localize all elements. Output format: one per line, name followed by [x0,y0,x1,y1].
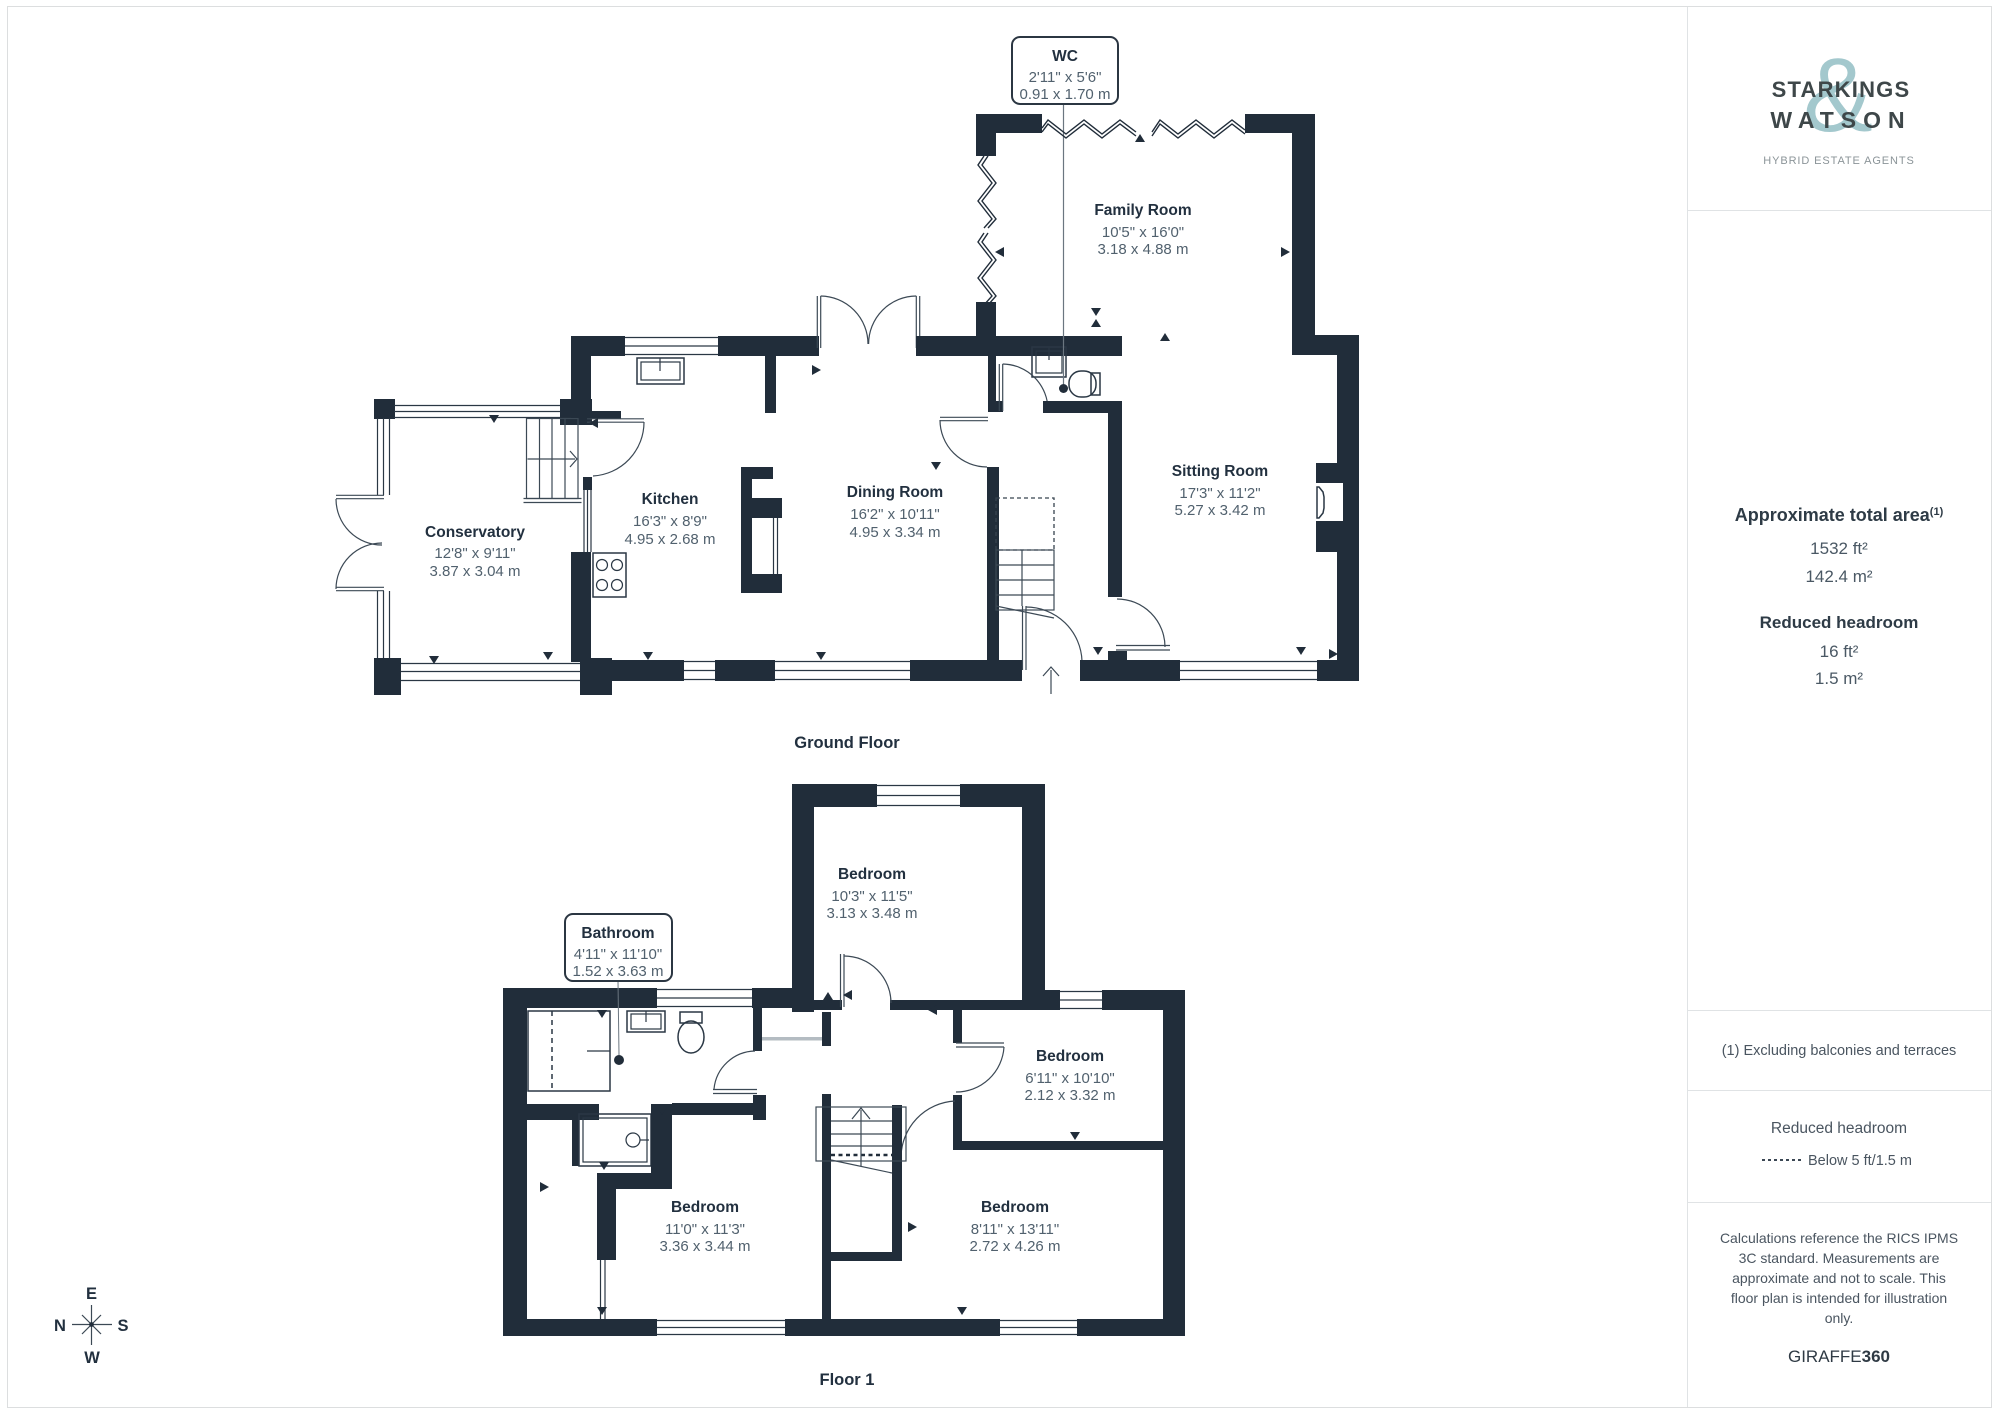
svg-text:Bedroom: Bedroom [671,1199,739,1216]
svg-text:142.4 m²: 142.4 m² [1805,567,1872,586]
svg-text:16'3" x 8'9": 16'3" x 8'9" [633,513,707,530]
svg-text:Kitchen: Kitchen [642,491,699,508]
svg-text:Family Room: Family Room [1094,202,1191,219]
svg-text:4'11" x 11'10": 4'11" x 11'10" [574,946,662,963]
svg-text:2.12 x 3.32 m: 2.12 x 3.32 m [1025,1087,1116,1104]
svg-text:Calculations reference the RIC: Calculations reference the RICS IPMS [1720,1230,1958,1246]
svg-text:Reduced headroom: Reduced headroom [1771,1120,1907,1137]
svg-text:approximate and not to scale.: approximate and not to scale. This [1732,1270,1946,1286]
svg-text:2.72 x 4.26 m: 2.72 x 4.26 m [970,1238,1061,1255]
svg-text:Dining Room: Dining Room [847,484,943,501]
svg-text:(1) Excluding balconies and te: (1) Excluding balconies and terraces [1722,1043,1957,1059]
svg-text:WC: WC [1052,48,1078,65]
svg-text:4.95 x 2.68 m: 4.95 x 2.68 m [625,531,716,548]
svg-text:3C standard. Measurements are: 3C standard. Measurements are [1739,1250,1940,1266]
svg-text:HYBRID ESTATE AGENTS: HYBRID ESTATE AGENTS [1763,155,1914,167]
svg-text:12'8" x 9'11": 12'8" x 9'11" [434,545,515,562]
svg-text:3.18 x 4.88 m: 3.18 x 4.88 m [1098,241,1189,258]
svg-text:Conservatory: Conservatory [425,524,525,541]
svg-text:8'11" x 13'11": 8'11" x 13'11" [971,1221,1059,1238]
svg-text:16 ft²: 16 ft² [1820,642,1859,661]
svg-text:Approximate total area(1): Approximate total area(1) [1735,505,1944,525]
svg-text:Ground Floor: Ground Floor [794,734,900,752]
svg-text:Bedroom: Bedroom [981,1199,1049,1216]
svg-text:10'5" x 16'0": 10'5" x 16'0" [1102,224,1184,241]
svg-text:11'0" x 11'3": 11'0" x 11'3" [665,1221,745,1238]
svg-text:Bathroom: Bathroom [581,925,654,942]
svg-text:E: E [86,1285,97,1303]
svg-text:4.95 x 3.34 m: 4.95 x 3.34 m [850,524,941,541]
svg-text:1.52 x 3.63 m: 1.52 x 3.63 m [573,963,664,980]
svg-text:16'2" x 10'11": 16'2" x 10'11" [850,506,940,523]
svg-text:STARKINGS: STARKINGS [1772,77,1911,102]
svg-text:W: W [84,1349,100,1367]
svg-text:N: N [54,1317,66,1335]
svg-text:Bedroom: Bedroom [1036,1048,1104,1065]
svg-text:floor plan is intended for ill: floor plan is intended for illustration [1731,1290,1947,1306]
svg-text:1.5 m²: 1.5 m² [1815,669,1864,688]
svg-text:Bedroom: Bedroom [838,866,906,883]
svg-text:Sitting Room: Sitting Room [1172,463,1268,480]
svg-text:1532 ft²: 1532 ft² [1810,539,1868,558]
svg-text:3.87 x 3.04 m: 3.87 x 3.04 m [430,563,521,580]
svg-text:6'11" x 10'10": 6'11" x 10'10" [1025,1070,1115,1087]
svg-text:10'3" x 11'5": 10'3" x 11'5" [831,888,912,905]
svg-text:3.36 x 3.44 m: 3.36 x 3.44 m [660,1238,751,1255]
svg-text:S: S [117,1317,128,1335]
svg-text:3.13 x 3.48 m: 3.13 x 3.48 m [827,905,918,922]
svg-text:2'11" x 5'6": 2'11" x 5'6" [1029,69,1102,86]
svg-text:5.27 x 3.42 m: 5.27 x 3.42 m [1175,502,1266,519]
svg-text:Below 5 ft/1.5 m: Below 5 ft/1.5 m [1808,1153,1912,1169]
svg-text:17'3" x 11'2": 17'3" x 11'2" [1179,485,1260,502]
svg-text:Floor 1: Floor 1 [819,1371,874,1389]
svg-text:Reduced headroom: Reduced headroom [1760,613,1919,632]
svg-text:WATSON: WATSON [1770,107,1911,133]
svg-text:only.: only. [1825,1310,1854,1326]
svg-text:GIRAFFE360: GIRAFFE360 [1788,1347,1890,1366]
svg-text:0.91 x 1.70 m: 0.91 x 1.70 m [1020,86,1111,103]
